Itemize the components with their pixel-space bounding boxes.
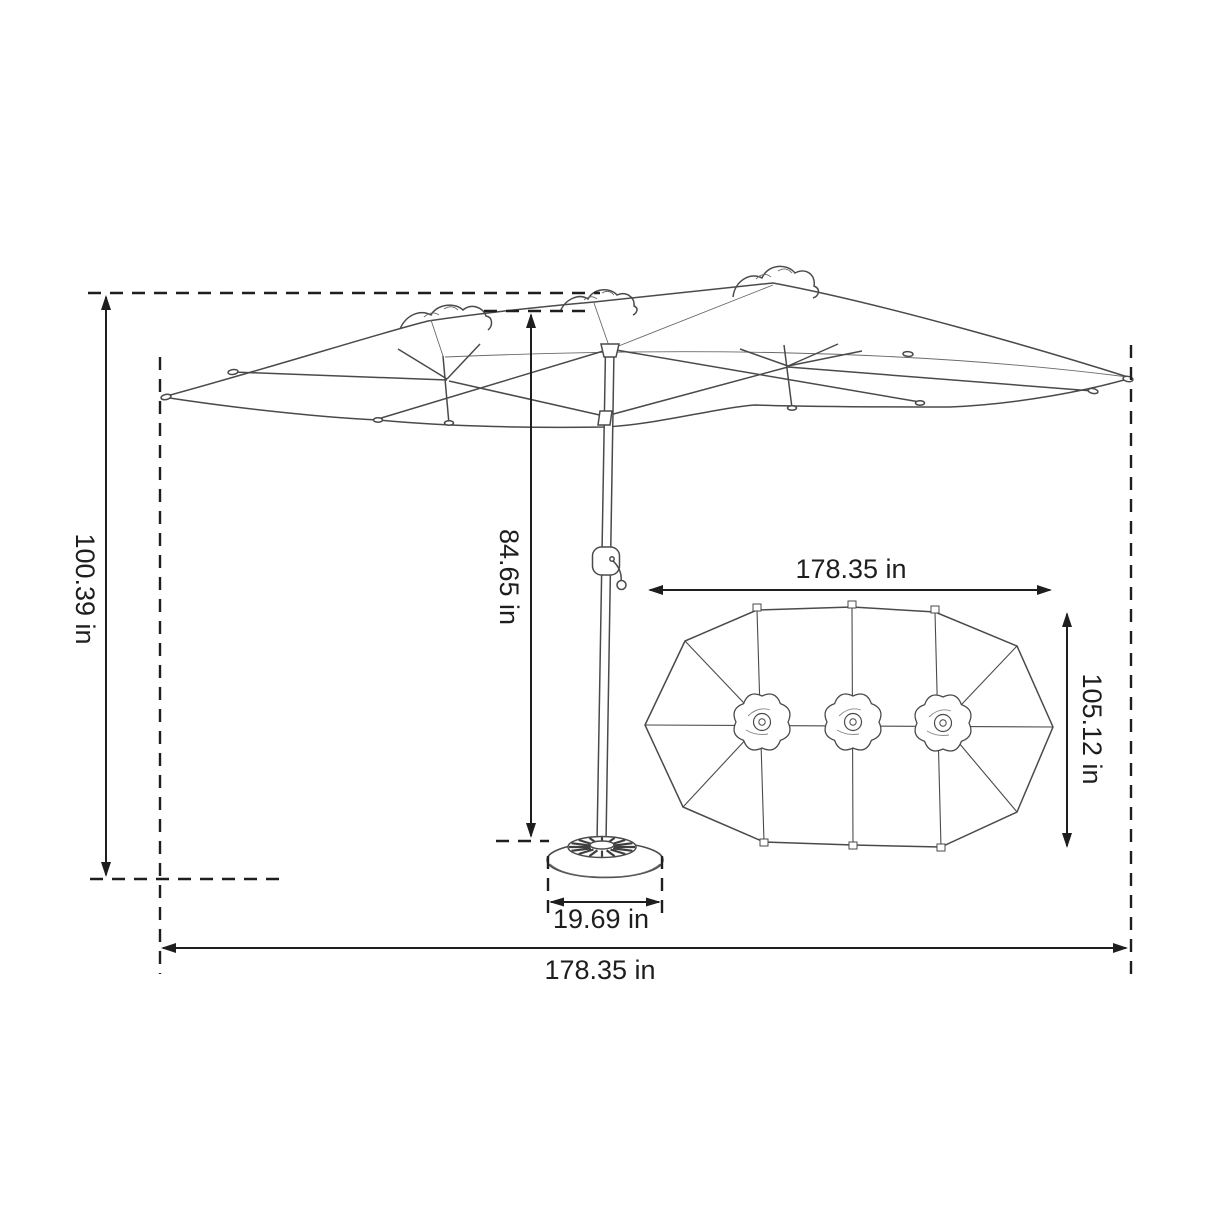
rib-cap — [445, 421, 454, 425]
dim-overall-height-label: 100.39 in — [70, 533, 100, 644]
fabric-bunch-folds — [424, 307, 458, 317]
dim-overall-width-label: 178.35 in — [544, 955, 655, 985]
base-pole-socket — [590, 841, 614, 849]
crank-housing — [593, 547, 620, 575]
umbrella-base — [547, 837, 663, 878]
pole-top-hub — [601, 344, 619, 357]
rib-cap — [374, 418, 383, 422]
diagram-canvas: 100.39 in 84.65 in 178.35 in 105.12 in 1… — [0, 0, 1214, 1214]
top-view-umbrella — [645, 601, 1053, 851]
dim-canopy-width-label: 178.35 in — [795, 554, 906, 584]
dim-canopy-depth-label: 105.12 in — [1077, 673, 1107, 784]
dim-base-width-label: 19.69 in — [553, 904, 649, 934]
crank-knob — [617, 581, 626, 590]
rib-cap — [788, 406, 797, 410]
umbrella-dimension-diagram: 100.39 in 84.65 in 178.35 in 105.12 in 1… — [0, 0, 1214, 1214]
rib-cap — [916, 401, 925, 405]
rib-cap — [228, 369, 239, 375]
rib-cap — [903, 351, 913, 356]
dim-pole-height-label: 84.65 in — [494, 529, 524, 625]
pole-runner-collar — [598, 411, 612, 425]
crank-pivot — [610, 557, 614, 561]
rib-cap — [161, 393, 172, 400]
rib-cap — [1088, 388, 1099, 395]
